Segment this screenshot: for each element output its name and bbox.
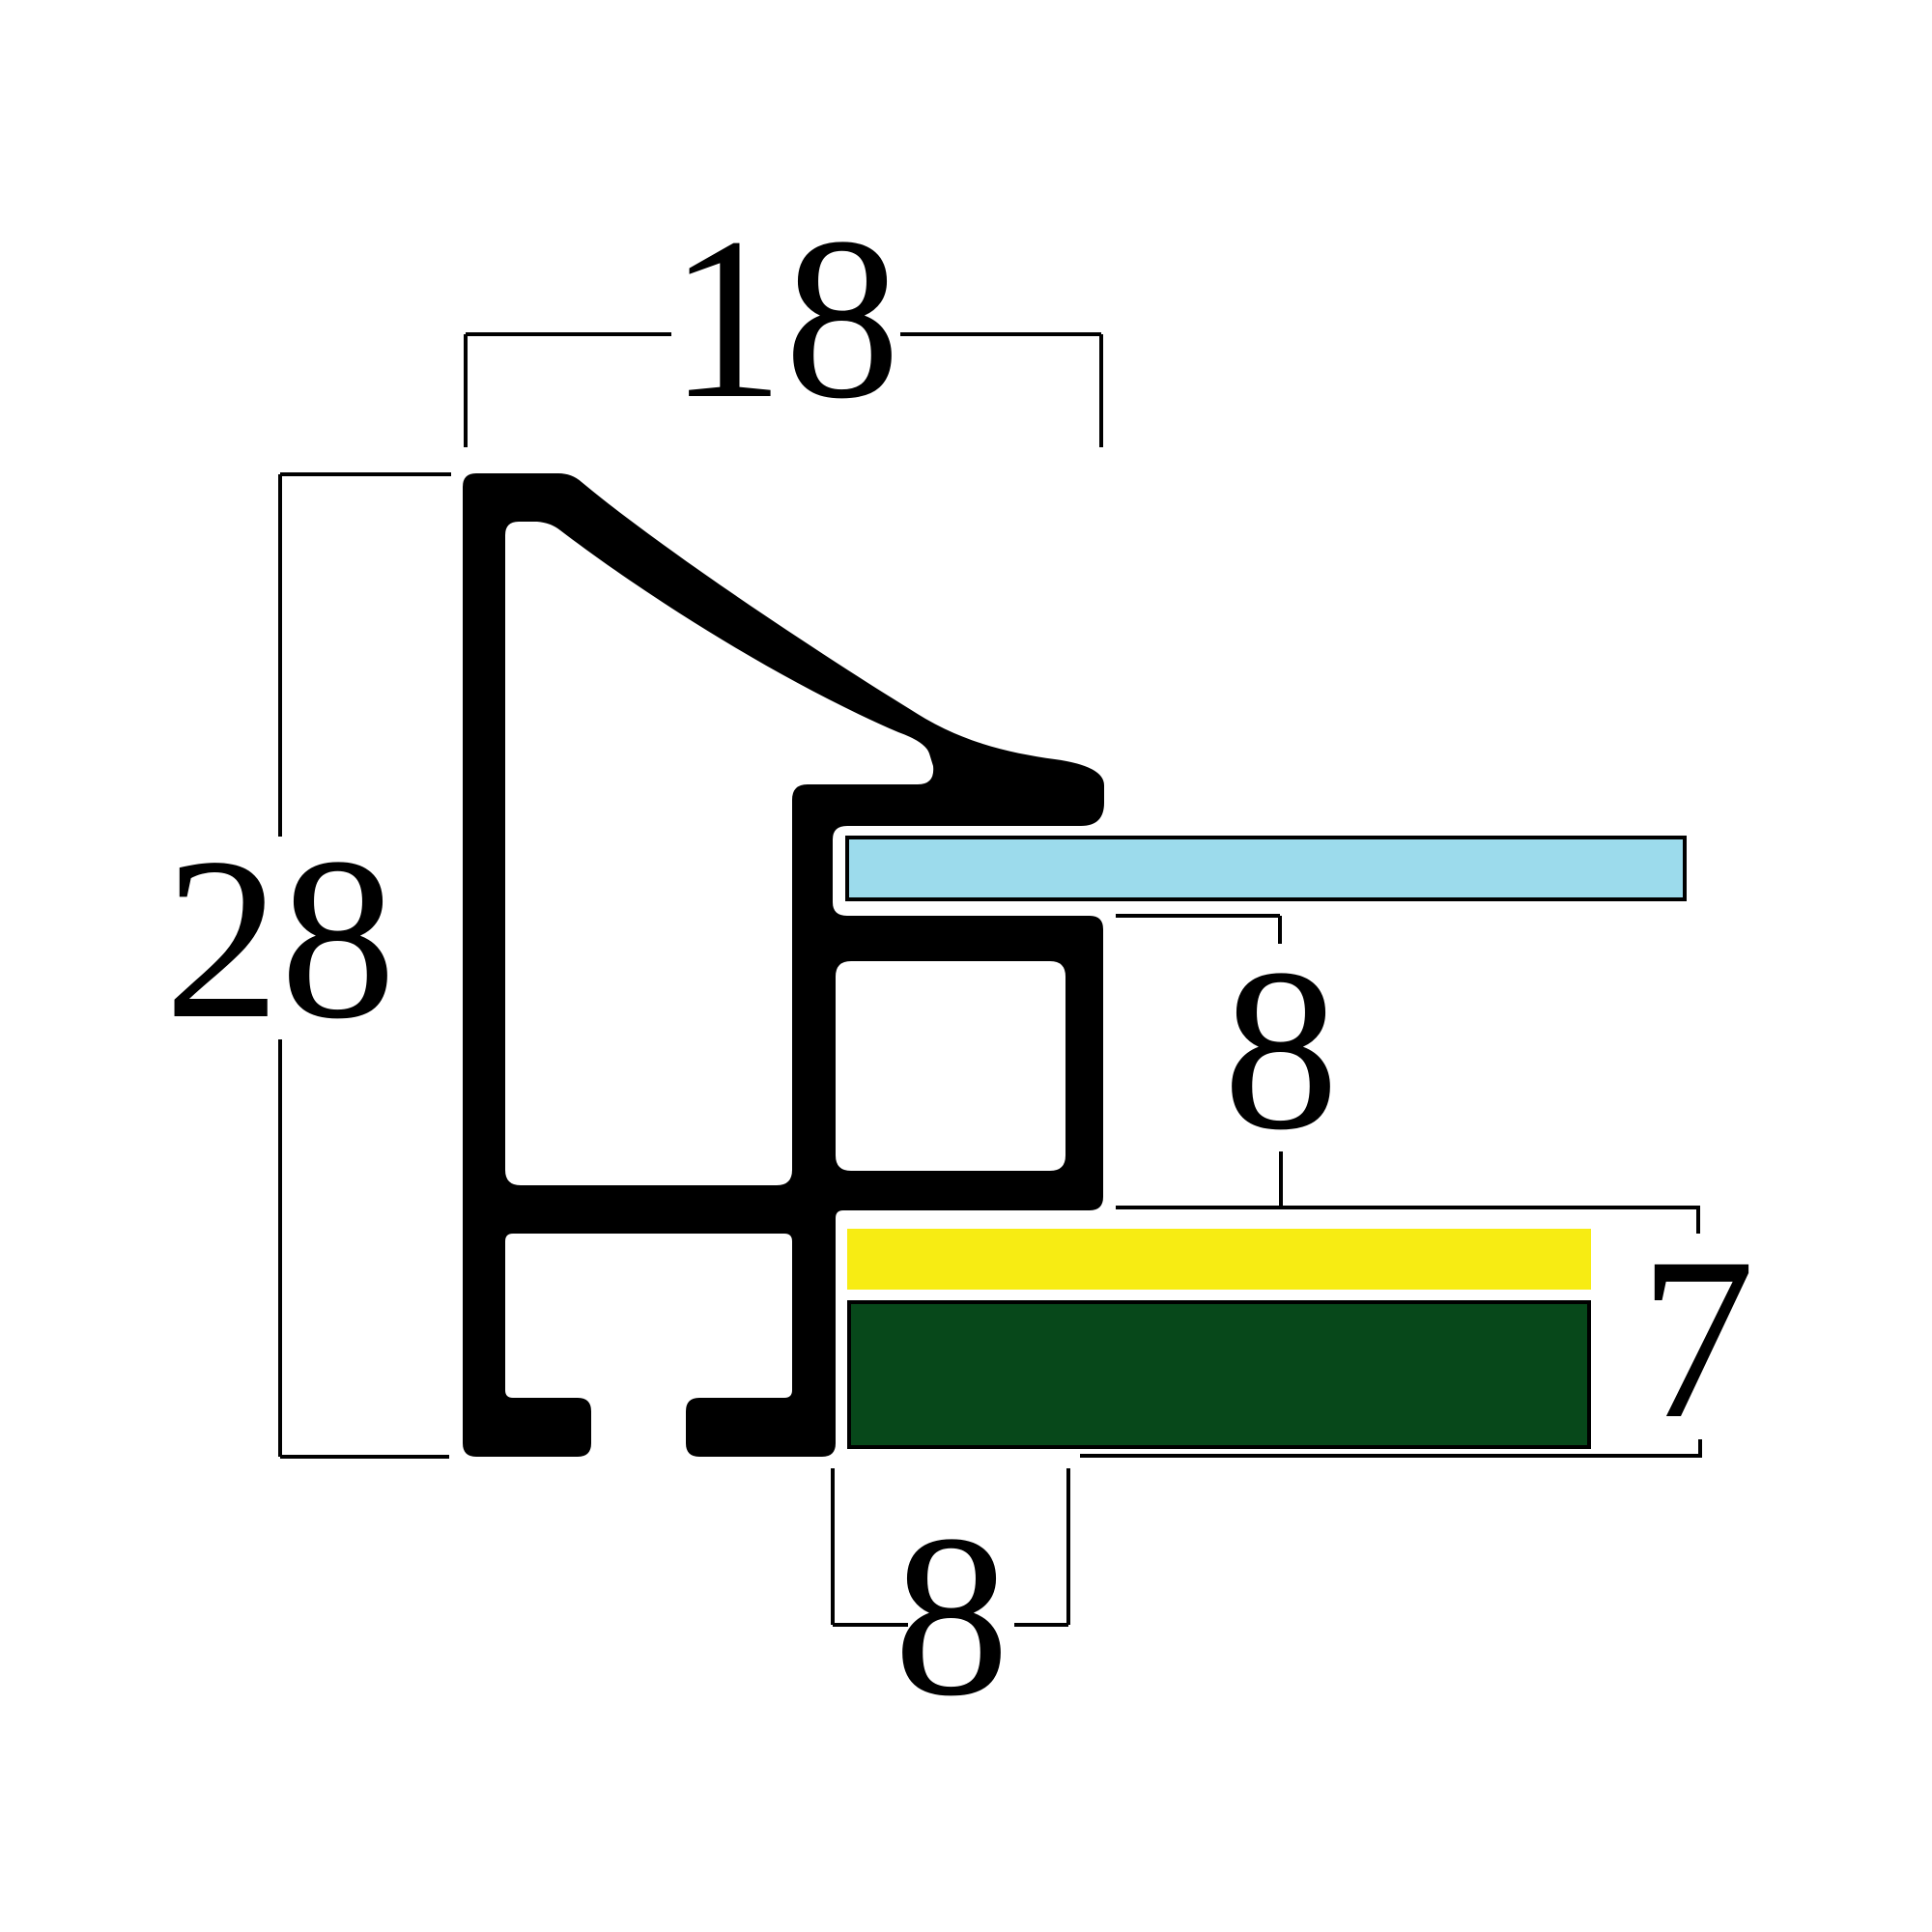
dim-label-right-height: 7 bbox=[1639, 1209, 1755, 1466]
glass-pane bbox=[847, 838, 1685, 899]
moulding-cross-section-diagram: 18 28 8 7 8 bbox=[0, 0, 1932, 1932]
dim-label-top-width: 18 bbox=[668, 189, 900, 446]
dim-label-rabbet-depth: 8 bbox=[1223, 921, 1339, 1178]
backing-board-green bbox=[849, 1302, 1589, 1447]
dim-label-bottom-width: 8 bbox=[894, 1487, 1009, 1744]
dim-label-left-height: 28 bbox=[164, 810, 396, 1066]
diagram-canvas: 18 28 8 7 8 bbox=[0, 0, 1932, 1932]
backing-board-yellow bbox=[847, 1229, 1591, 1290]
